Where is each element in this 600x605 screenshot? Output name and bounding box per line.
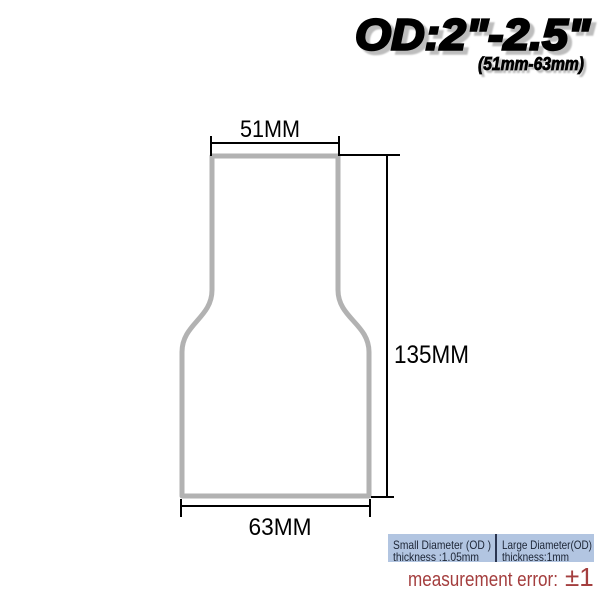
svg-text:(51mm-63mm): (51mm-63mm) xyxy=(478,54,584,74)
svg-text:51MM: 51MM xyxy=(240,116,300,143)
svg-text:OD:2"-2.5": OD:2"-2.5" xyxy=(355,11,591,60)
svg-text:135MM: 135MM xyxy=(394,341,469,369)
svg-text:±1: ±1 xyxy=(565,562,594,592)
svg-text:63MM: 63MM xyxy=(249,514,312,541)
svg-text:thickness:1mm: thickness:1mm xyxy=(502,550,569,564)
svg-text:measurement error:: measurement error: xyxy=(408,569,558,591)
svg-text:thickness :1.05mm: thickness :1.05mm xyxy=(393,550,479,564)
